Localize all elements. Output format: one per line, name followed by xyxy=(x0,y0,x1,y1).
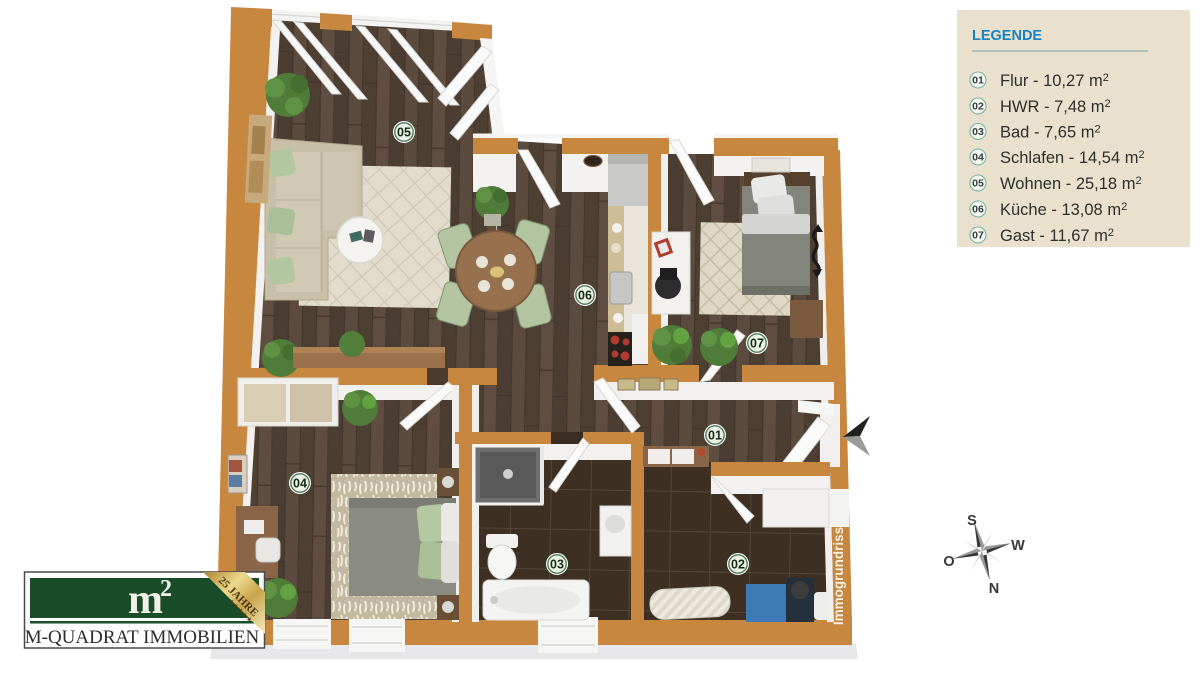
svg-text:Flur - 10,27 m2: Flur - 10,27 m2 xyxy=(1000,72,1109,90)
svg-text:O: O xyxy=(943,554,954,570)
svg-text:HWR - 7,48 m2: HWR - 7,48 m2 xyxy=(1000,98,1111,116)
svg-text:Bad - 7,65 m2: Bad - 7,65 m2 xyxy=(1000,124,1101,142)
svg-text:01: 01 xyxy=(708,429,722,443)
svg-text:03: 03 xyxy=(972,126,984,138)
svg-text:Immogrundriss: Immogrundriss xyxy=(831,527,846,625)
svg-text:06: 06 xyxy=(972,204,984,216)
svg-text:N: N xyxy=(989,581,999,597)
svg-text:Schlafen - 14,54 m2: Schlafen - 14,54 m2 xyxy=(1000,149,1145,167)
svg-text:07: 07 xyxy=(972,230,984,242)
svg-text:04: 04 xyxy=(293,477,307,491)
svg-text:S: S xyxy=(967,513,977,529)
svg-text:W: W xyxy=(1011,538,1025,554)
svg-text:05: 05 xyxy=(972,178,984,190)
svg-text:m: m xyxy=(128,577,163,623)
svg-text:Küche - 13,08 m2: Küche - 13,08 m2 xyxy=(1000,201,1127,219)
svg-text:LEGENDE: LEGENDE xyxy=(972,28,1042,44)
svg-text:M-QUADRAT IMMOBILIEN: M-QUADRAT IMMOBILIEN xyxy=(25,627,260,648)
svg-text:Wohnen - 25,18 m2: Wohnen - 25,18 m2 xyxy=(1000,175,1142,193)
svg-text:01: 01 xyxy=(972,75,984,87)
svg-text:04: 04 xyxy=(972,152,984,164)
svg-text:02: 02 xyxy=(731,558,745,572)
svg-text:05: 05 xyxy=(397,126,411,140)
svg-text:Gast - 11,67 m2: Gast - 11,67 m2 xyxy=(1000,227,1114,245)
svg-text:2: 2 xyxy=(160,576,172,602)
svg-text:07: 07 xyxy=(750,337,764,351)
svg-text:06: 06 xyxy=(578,289,592,303)
svg-text:02: 02 xyxy=(972,101,984,113)
svg-text:03: 03 xyxy=(550,558,564,572)
